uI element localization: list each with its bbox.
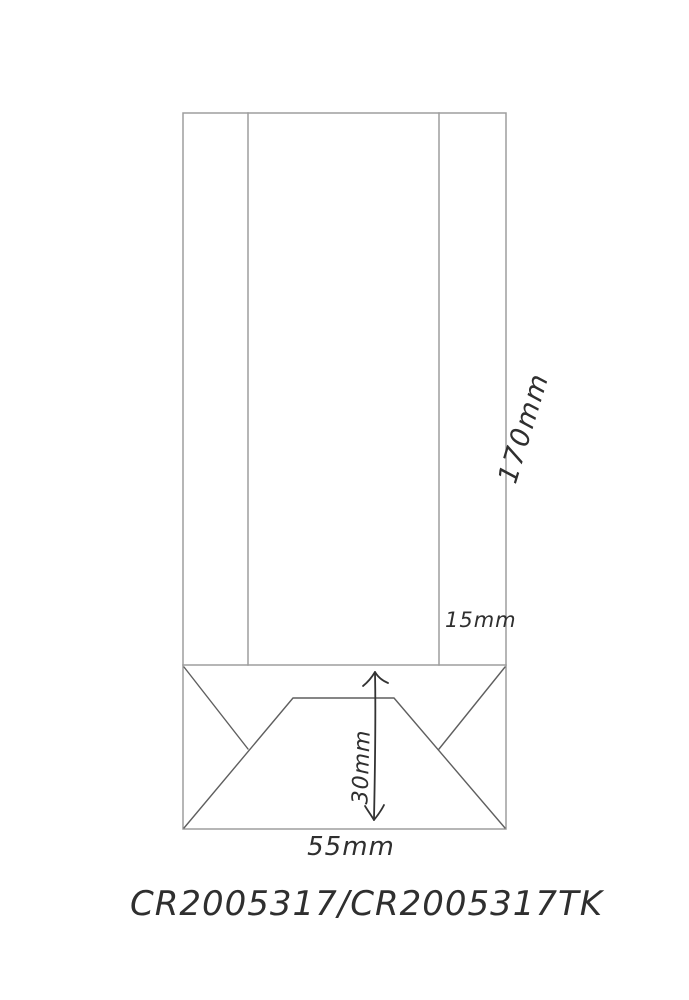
bag-outline-rect: [183, 113, 506, 829]
corner-fold-line-right: [439, 667, 505, 749]
product-code: CR2005317/CR2005317TK: [130, 884, 550, 924]
arrowhead-bottom-right-wing: [374, 805, 384, 820]
bottom-trapezoid-fold: [184, 698, 505, 828]
corner-fold-line-left: [184, 667, 248, 749]
dimension-label-bottom-height: 30mm: [348, 729, 376, 805]
arrowhead-top-right-wing: [375, 672, 388, 683]
ruled-lines-group: [183, 113, 506, 829]
dimension-label-bottom-width: 55mm: [307, 832, 395, 862]
arrowhead-top-left-wing: [363, 672, 375, 686]
blueprint-page: 170mm 15mm 30mm 55mm CR2005317/CR2005317…: [0, 0, 689, 1000]
arrowhead-bottom-left-wing: [365, 806, 374, 820]
bottom-fold-group: [184, 667, 505, 828]
dimension-label-side-gusset: 15mm: [445, 608, 517, 632]
